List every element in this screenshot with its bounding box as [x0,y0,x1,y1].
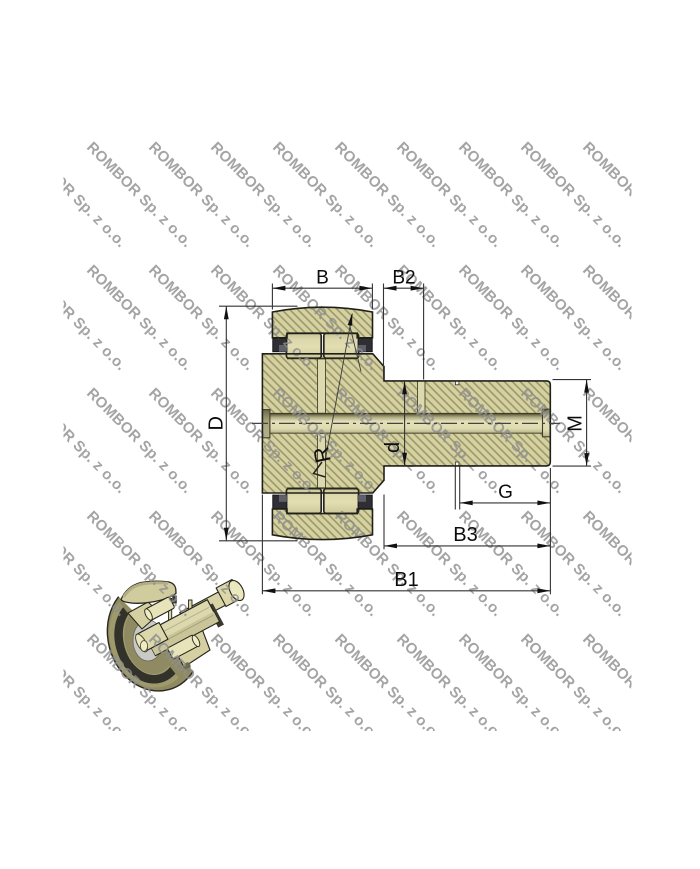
svg-text:B2: B2 [392,268,415,289]
svg-text:M: M [565,415,587,432]
svg-text:B: B [316,268,329,289]
svg-text:d: d [382,442,404,453]
svg-text:D: D [206,416,228,430]
svg-text:G: G [498,482,513,503]
svg-text:B1: B1 [394,569,418,591]
svg-text:B3: B3 [453,524,477,546]
